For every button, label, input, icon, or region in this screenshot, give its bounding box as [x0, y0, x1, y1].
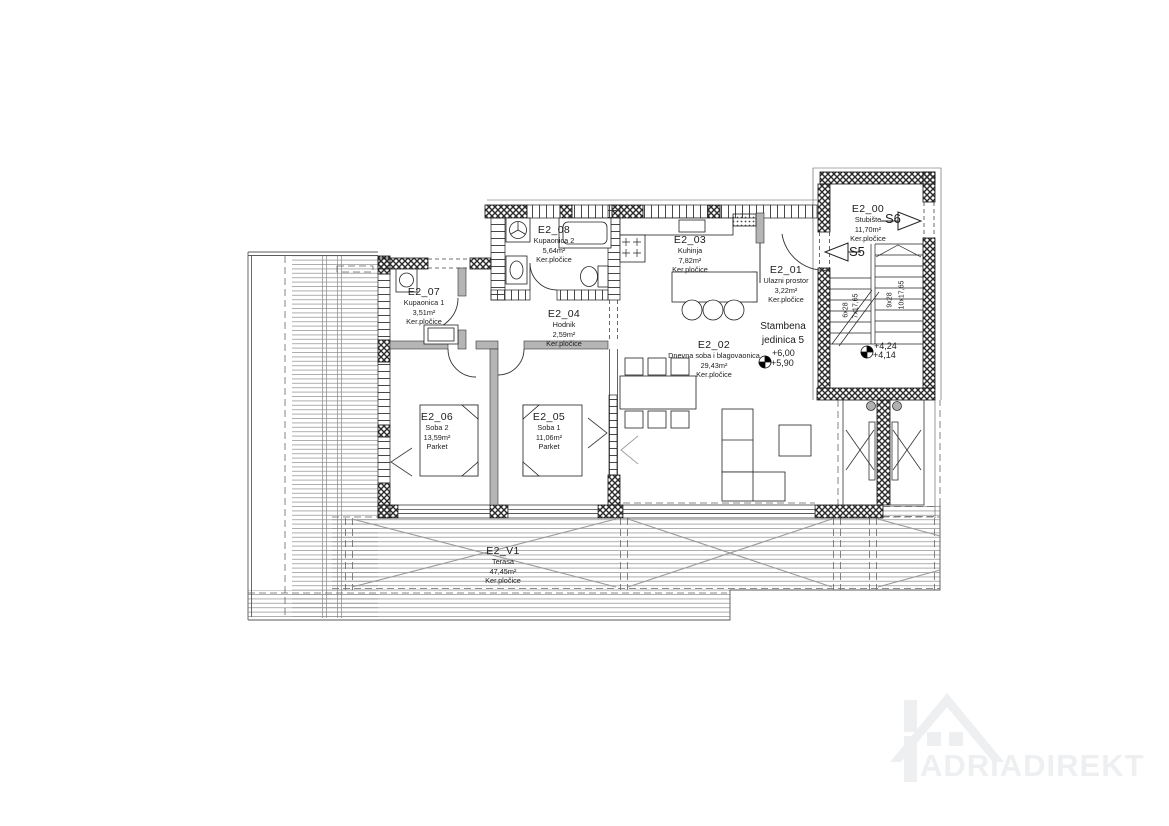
wardrobe	[733, 214, 756, 226]
room-area: 29,43m²	[654, 361, 774, 370]
room-id: E2_01	[726, 264, 846, 276]
watermark: ADRIADIREKT	[890, 690, 1160, 794]
room-floor: Ker.pločice	[504, 339, 624, 348]
room-id: E2_04	[504, 308, 624, 320]
chair	[648, 411, 666, 428]
counter	[620, 218, 733, 235]
sofa	[722, 472, 785, 501]
room-id: E2_V1	[443, 545, 563, 557]
room-id: E2_08	[494, 224, 614, 236]
room-floor: Ker.pločice	[443, 576, 563, 585]
room-id: E2_05	[489, 411, 609, 423]
room-name: Soba 1	[489, 423, 609, 432]
arrow-s5	[825, 243, 848, 261]
room-name: Kuhinja	[630, 246, 750, 255]
room-floor: Ker.pločice	[808, 234, 928, 243]
room-floor: Ker.pločice	[654, 370, 774, 379]
room-area: 5,64m²	[494, 246, 614, 255]
room-id: E2_06	[377, 411, 497, 423]
room-label-e2-05: E2_05 Soba 1 11,06m² Parket	[489, 411, 609, 452]
elevation-stair-upper: +4,24	[874, 341, 897, 351]
stair-dim-flight-b-risers: 9x28	[887, 292, 894, 307]
elevation-stair-lower: +4,14	[873, 350, 896, 360]
room-label-e2-00: E2_00 Stubište 11,70m² Ker.pločice	[808, 203, 928, 244]
room-label-e2-v1: E2_V1 Terasa 47,45m² Ker.pločice	[443, 545, 563, 586]
watermark-text: ADRIADIREKT	[920, 748, 1145, 784]
room-floor: Parket	[377, 442, 497, 451]
chair	[671, 411, 689, 428]
toilet-bowl	[581, 267, 598, 287]
room-area: 13,59m²	[377, 433, 497, 442]
room-floor: Ker.pločice	[726, 295, 846, 304]
stair-dim-flight-b-treads: 10x17,65	[899, 281, 906, 310]
floor-plan-canvas: E2_00 Stubište 11,70m² Ker.pločice E2_08…	[0, 0, 1169, 826]
room-name: Hodnik	[504, 320, 624, 329]
stair-ref-s5: S5	[849, 244, 865, 259]
room-floor: Ker.pločice	[494, 255, 614, 264]
room-area: 3,51m²	[364, 308, 484, 317]
room-name: Stubište	[808, 215, 928, 224]
chair	[625, 411, 643, 428]
room-area: 11,06m²	[489, 433, 609, 442]
stair-dim-flight-a-treads: 7x17,65	[853, 294, 860, 319]
unit-label: Stambena jedinica 5	[743, 320, 823, 347]
stool	[703, 300, 723, 320]
chair	[625, 358, 643, 375]
stair-ref-s6: S6	[885, 211, 901, 226]
room-area: 3,22m²	[726, 286, 846, 295]
room-area: 47,45m²	[443, 567, 563, 576]
dining-table	[620, 376, 696, 409]
room-label-e2-04: E2_04 Hodnik 2,59m² Ker.pločice	[504, 308, 624, 349]
toilet-tank	[598, 266, 608, 287]
room-name: Soba 2	[377, 423, 497, 432]
coffee-table	[779, 425, 811, 456]
room-id: E2_07	[364, 286, 484, 298]
room-id: E2_03	[630, 234, 750, 246]
room-area: 11,70m²	[808, 225, 928, 234]
room-floor: Ker.pločice	[364, 317, 484, 326]
room-name: Kupaonica 2	[494, 236, 614, 245]
room-label-e2-08: E2_08 Kupaonica 2 5,64m² Ker.pločice	[494, 224, 614, 265]
elevation-living-upper: +6,00	[772, 348, 795, 358]
room-label-e2-06: E2_06 Soba 2 13,59m² Parket	[377, 411, 497, 452]
elevation-living-lower: +5,90	[771, 358, 794, 368]
room-floor: Parket	[489, 442, 609, 451]
room-area: 2,59m²	[504, 330, 624, 339]
stair-dim-flight-a-risers: 6x28	[843, 302, 850, 317]
room-name: Kupaonica 1	[364, 298, 484, 307]
stool	[682, 300, 702, 320]
room-name: Ulazni prostor	[726, 276, 846, 285]
room-name: Terasa	[443, 557, 563, 566]
sofa	[722, 409, 753, 472]
room-label-e2-01: E2_01 Ulazni prostor 3,22m² Ker.pločice	[726, 264, 846, 305]
room-label-e2-07: E2_07 Kupaonica 1 3,51m² Ker.pločice	[364, 286, 484, 327]
room-name: Dnevna soba i blagovaonica	[654, 351, 774, 360]
room-id: E2_00	[808, 203, 928, 215]
